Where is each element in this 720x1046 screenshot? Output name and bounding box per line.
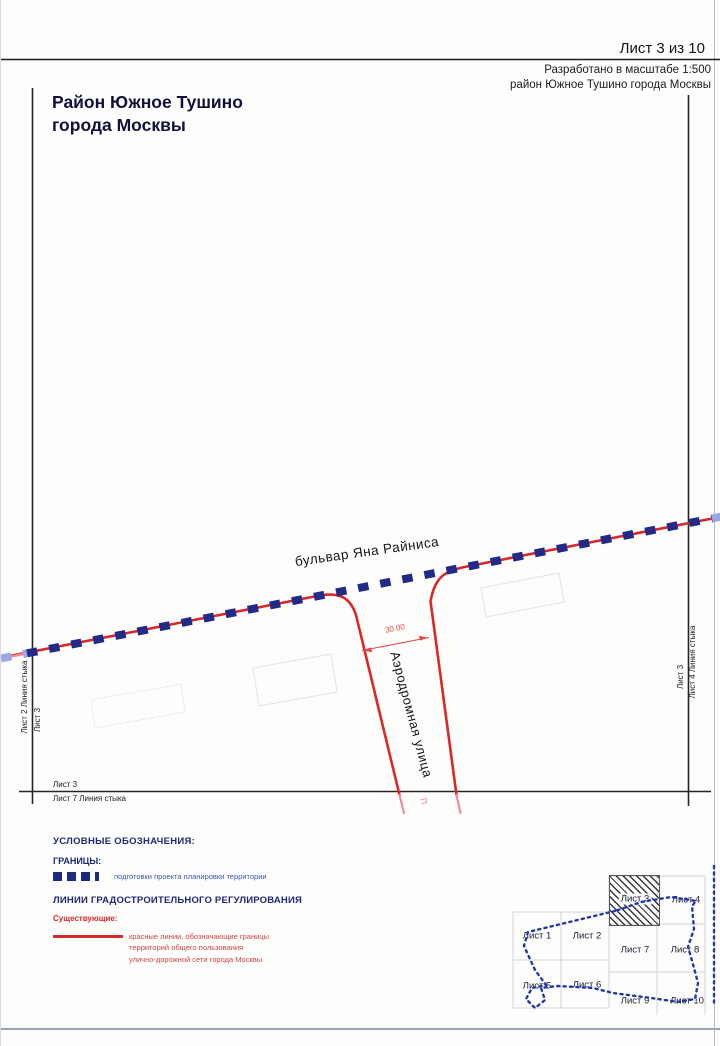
district-dotted-boundary xyxy=(524,866,714,1008)
district-boundary-overlay xyxy=(1,0,720,1046)
plan-sheet-page: Лист 3 из 10 Разработано в масштабе 1:50… xyxy=(0,0,720,1046)
